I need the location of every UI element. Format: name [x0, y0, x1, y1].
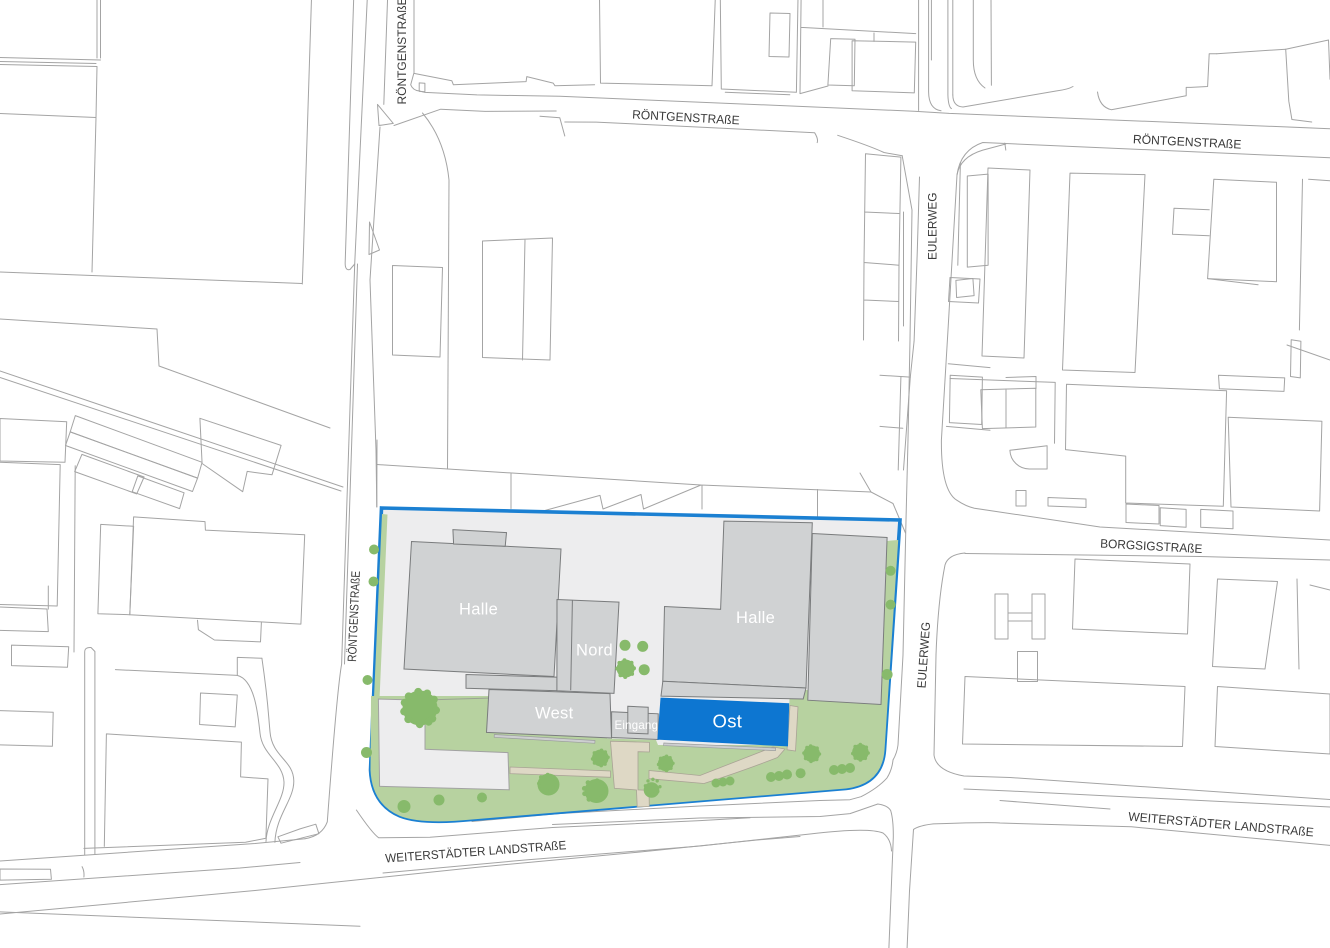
svg-text:Halle: Halle [459, 601, 498, 619]
svg-text:Eingang: Eingang [615, 718, 659, 732]
svg-text:EULERWEG: EULERWEG [926, 193, 940, 261]
svg-text:Ost: Ost [713, 710, 743, 731]
svg-text:Halle: Halle [736, 609, 775, 627]
svg-text:West: West [535, 705, 574, 723]
svg-text:RÖNTGENSTRAßE: RÖNTGENSTRAßE [395, 0, 409, 105]
svg-text:Nord: Nord [576, 642, 613, 660]
